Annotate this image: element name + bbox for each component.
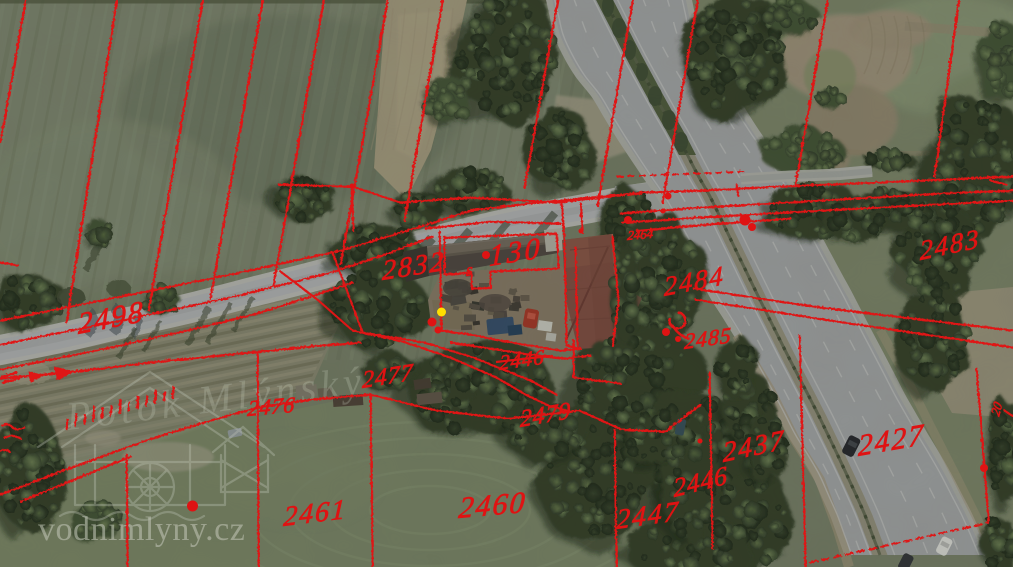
svg-text:2476: 2476 xyxy=(247,392,297,421)
svg-text:2464: 2464 xyxy=(627,226,655,243)
svg-text:2460: 2460 xyxy=(457,485,528,525)
svg-text:s: s xyxy=(466,260,473,280)
